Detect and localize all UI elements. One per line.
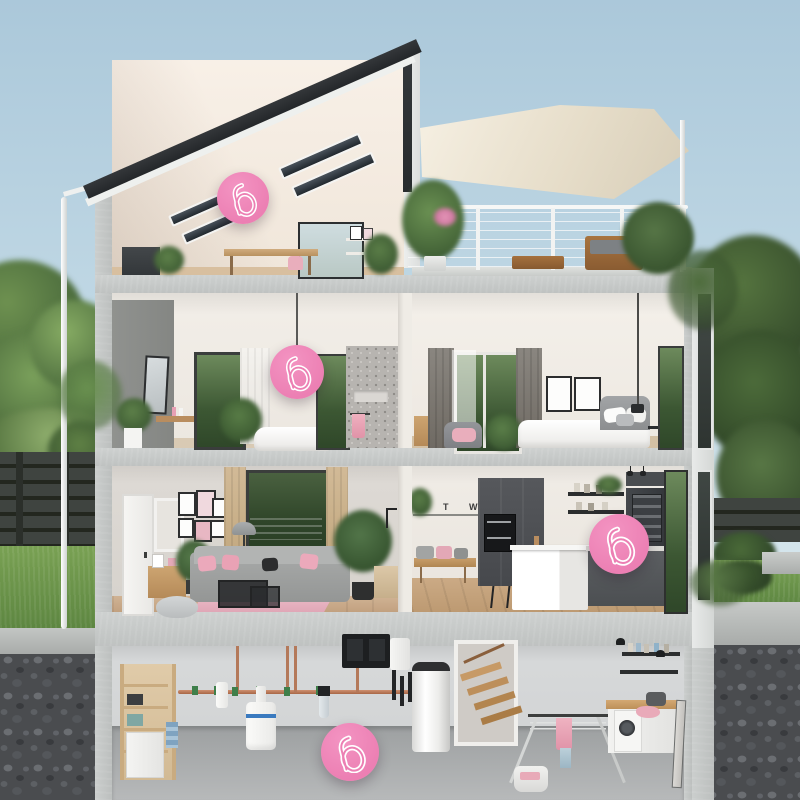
bathroom-soap-bottle bbox=[172, 407, 176, 416]
bedroom-pendant-cord bbox=[637, 293, 639, 405]
sofa-pillow-pink bbox=[197, 555, 216, 572]
terrace-plant-pot bbox=[424, 256, 446, 271]
counter-laundry-bag bbox=[646, 692, 666, 706]
sofa-pillow-pink bbox=[221, 554, 239, 570]
left-fence-post bbox=[16, 452, 23, 548]
tank-top-cap bbox=[412, 662, 450, 671]
attic-desk bbox=[224, 249, 318, 256]
island-deco-bottle bbox=[534, 536, 539, 545]
pink-towel bbox=[352, 414, 365, 438]
hot-water-tank bbox=[412, 666, 450, 752]
floor1-divider-wall bbox=[398, 466, 412, 612]
attic-monstera-plant bbox=[364, 234, 398, 274]
brand-b-logo-icon bbox=[224, 179, 262, 217]
terrace-oleander-flowers bbox=[434, 208, 456, 226]
bench-cushion-grey bbox=[454, 548, 468, 559]
bench-legs bbox=[420, 567, 422, 583]
laundry-tub-label bbox=[520, 772, 540, 780]
basement-stair-doorway bbox=[454, 640, 518, 746]
water-softener-accent bbox=[246, 714, 276, 718]
hotspot-attic-studio[interactable] bbox=[217, 172, 269, 224]
coffee-table-nested bbox=[250, 586, 280, 608]
laundry-wall-shelf bbox=[622, 652, 680, 656]
window-fence-reflection bbox=[250, 518, 322, 540]
washing-machine-door bbox=[619, 720, 635, 736]
wall-sconce bbox=[386, 508, 397, 528]
storage-cabinet-white bbox=[126, 732, 164, 778]
living-palm-plant bbox=[334, 510, 392, 572]
living-palm-pot bbox=[352, 582, 374, 600]
copper-pipe-riser bbox=[236, 646, 239, 692]
right-tree-overlap bbox=[668, 250, 738, 330]
bench-cushion-grey bbox=[416, 546, 434, 559]
mid-floor-slab bbox=[95, 448, 692, 466]
right-planter bbox=[762, 552, 800, 574]
water-softener bbox=[246, 702, 276, 750]
hotspot-basement-laundry[interactable] bbox=[321, 723, 379, 781]
oven-handle bbox=[487, 521, 511, 523]
right-soil-gravel bbox=[704, 645, 800, 800]
terrace-railing-post bbox=[476, 208, 480, 270]
bedroom-chair-cushion bbox=[452, 428, 476, 442]
basement-floor bbox=[112, 726, 684, 800]
wall-lamp-black bbox=[656, 650, 665, 657]
brand-b-logo-icon bbox=[329, 731, 372, 774]
blue-towel-stack bbox=[166, 722, 178, 748]
electrical-panel-modules bbox=[347, 639, 363, 661]
pipe-valve-green bbox=[192, 686, 198, 695]
drying-towel-pink bbox=[556, 718, 572, 750]
living-side-cube-table bbox=[374, 566, 398, 598]
brand-b-logo-icon bbox=[597, 522, 641, 566]
attic-desk-leg bbox=[308, 256, 311, 275]
floor-lamp-shade bbox=[232, 522, 256, 535]
right-ground-curb bbox=[704, 602, 800, 646]
counter-pink-cloth bbox=[636, 706, 660, 718]
house-right-wall-underground bbox=[692, 648, 714, 800]
filter-housing bbox=[318, 686, 330, 696]
left-garden-fence bbox=[0, 452, 96, 548]
bedroom-picture-frame bbox=[574, 377, 601, 411]
attic-desk-leg bbox=[230, 256, 233, 275]
storage-box-dark bbox=[127, 694, 143, 705]
gallery-frame bbox=[178, 518, 194, 538]
shelf-plant bbox=[596, 476, 622, 494]
terrace-bench bbox=[512, 256, 564, 269]
bathroom-pendant-cord bbox=[296, 293, 298, 347]
door-handle bbox=[144, 552, 147, 558]
kitchen-island bbox=[512, 548, 588, 610]
left-ground-curb bbox=[0, 628, 96, 656]
island-countertop bbox=[510, 545, 590, 550]
attic-floor-slab bbox=[95, 275, 692, 293]
bathroom-plant bbox=[116, 398, 152, 432]
bedroom-plant bbox=[486, 414, 522, 450]
house-cutaway-scene: B T W bbox=[0, 0, 800, 800]
drying-rack-frame bbox=[528, 714, 608, 717]
hotspot-bathroom[interactable] bbox=[270, 345, 324, 399]
filter-housing-bowl bbox=[319, 696, 329, 718]
drying-towel-blue bbox=[560, 748, 571, 768]
gallery-frame bbox=[178, 492, 196, 516]
bench-cushion-pink bbox=[436, 546, 452, 559]
wall-boiler-unit bbox=[390, 638, 410, 670]
storage-box-teal bbox=[127, 714, 143, 726]
bathroom-plant-pot bbox=[124, 428, 142, 448]
bedroom-picture-frame bbox=[546, 376, 572, 412]
attic-picture-frame bbox=[350, 226, 362, 240]
shelf-jar-row2 bbox=[576, 502, 582, 510]
kitchen-patio-door bbox=[664, 470, 688, 614]
hotspot-kitchen[interactable] bbox=[589, 514, 649, 574]
terrace-peak-wall-dark-clad bbox=[403, 52, 412, 192]
shower-niche bbox=[354, 390, 388, 402]
wall-lamp-black bbox=[616, 638, 625, 645]
kitchen-pendant-spot bbox=[627, 471, 633, 476]
pouf bbox=[156, 596, 198, 618]
right-tree-overlap bbox=[690, 560, 750, 606]
black-pipes bbox=[392, 670, 396, 700]
bathroom-soap-bottle bbox=[179, 408, 183, 416]
left-soil-gravel bbox=[0, 654, 96, 800]
left-lawn bbox=[0, 546, 96, 632]
laundry-shelf-bottles bbox=[628, 643, 633, 652]
water-filter-unit bbox=[216, 682, 228, 708]
shelving-shelves bbox=[120, 684, 168, 687]
attic-chair bbox=[288, 256, 303, 270]
bedroom-window-right bbox=[658, 346, 684, 450]
sofa-pillow-pink bbox=[299, 553, 319, 570]
attic-plant bbox=[154, 246, 184, 274]
sofa-pillow-black bbox=[262, 557, 279, 571]
sideboard-deco-frame bbox=[152, 554, 164, 568]
floor2-divider-wall bbox=[398, 293, 412, 448]
kitchen-bench bbox=[414, 558, 476, 567]
bed-pillow-grey bbox=[616, 414, 634, 426]
brand-b-logo-icon bbox=[277, 352, 317, 392]
copper-pipe-horizontal bbox=[178, 690, 418, 694]
sideboard-deco-box bbox=[168, 558, 176, 566]
bedroom-pendant-lamp bbox=[631, 404, 644, 413]
left-tree-overlap bbox=[58, 360, 122, 430]
shelf-jar bbox=[574, 483, 580, 492]
